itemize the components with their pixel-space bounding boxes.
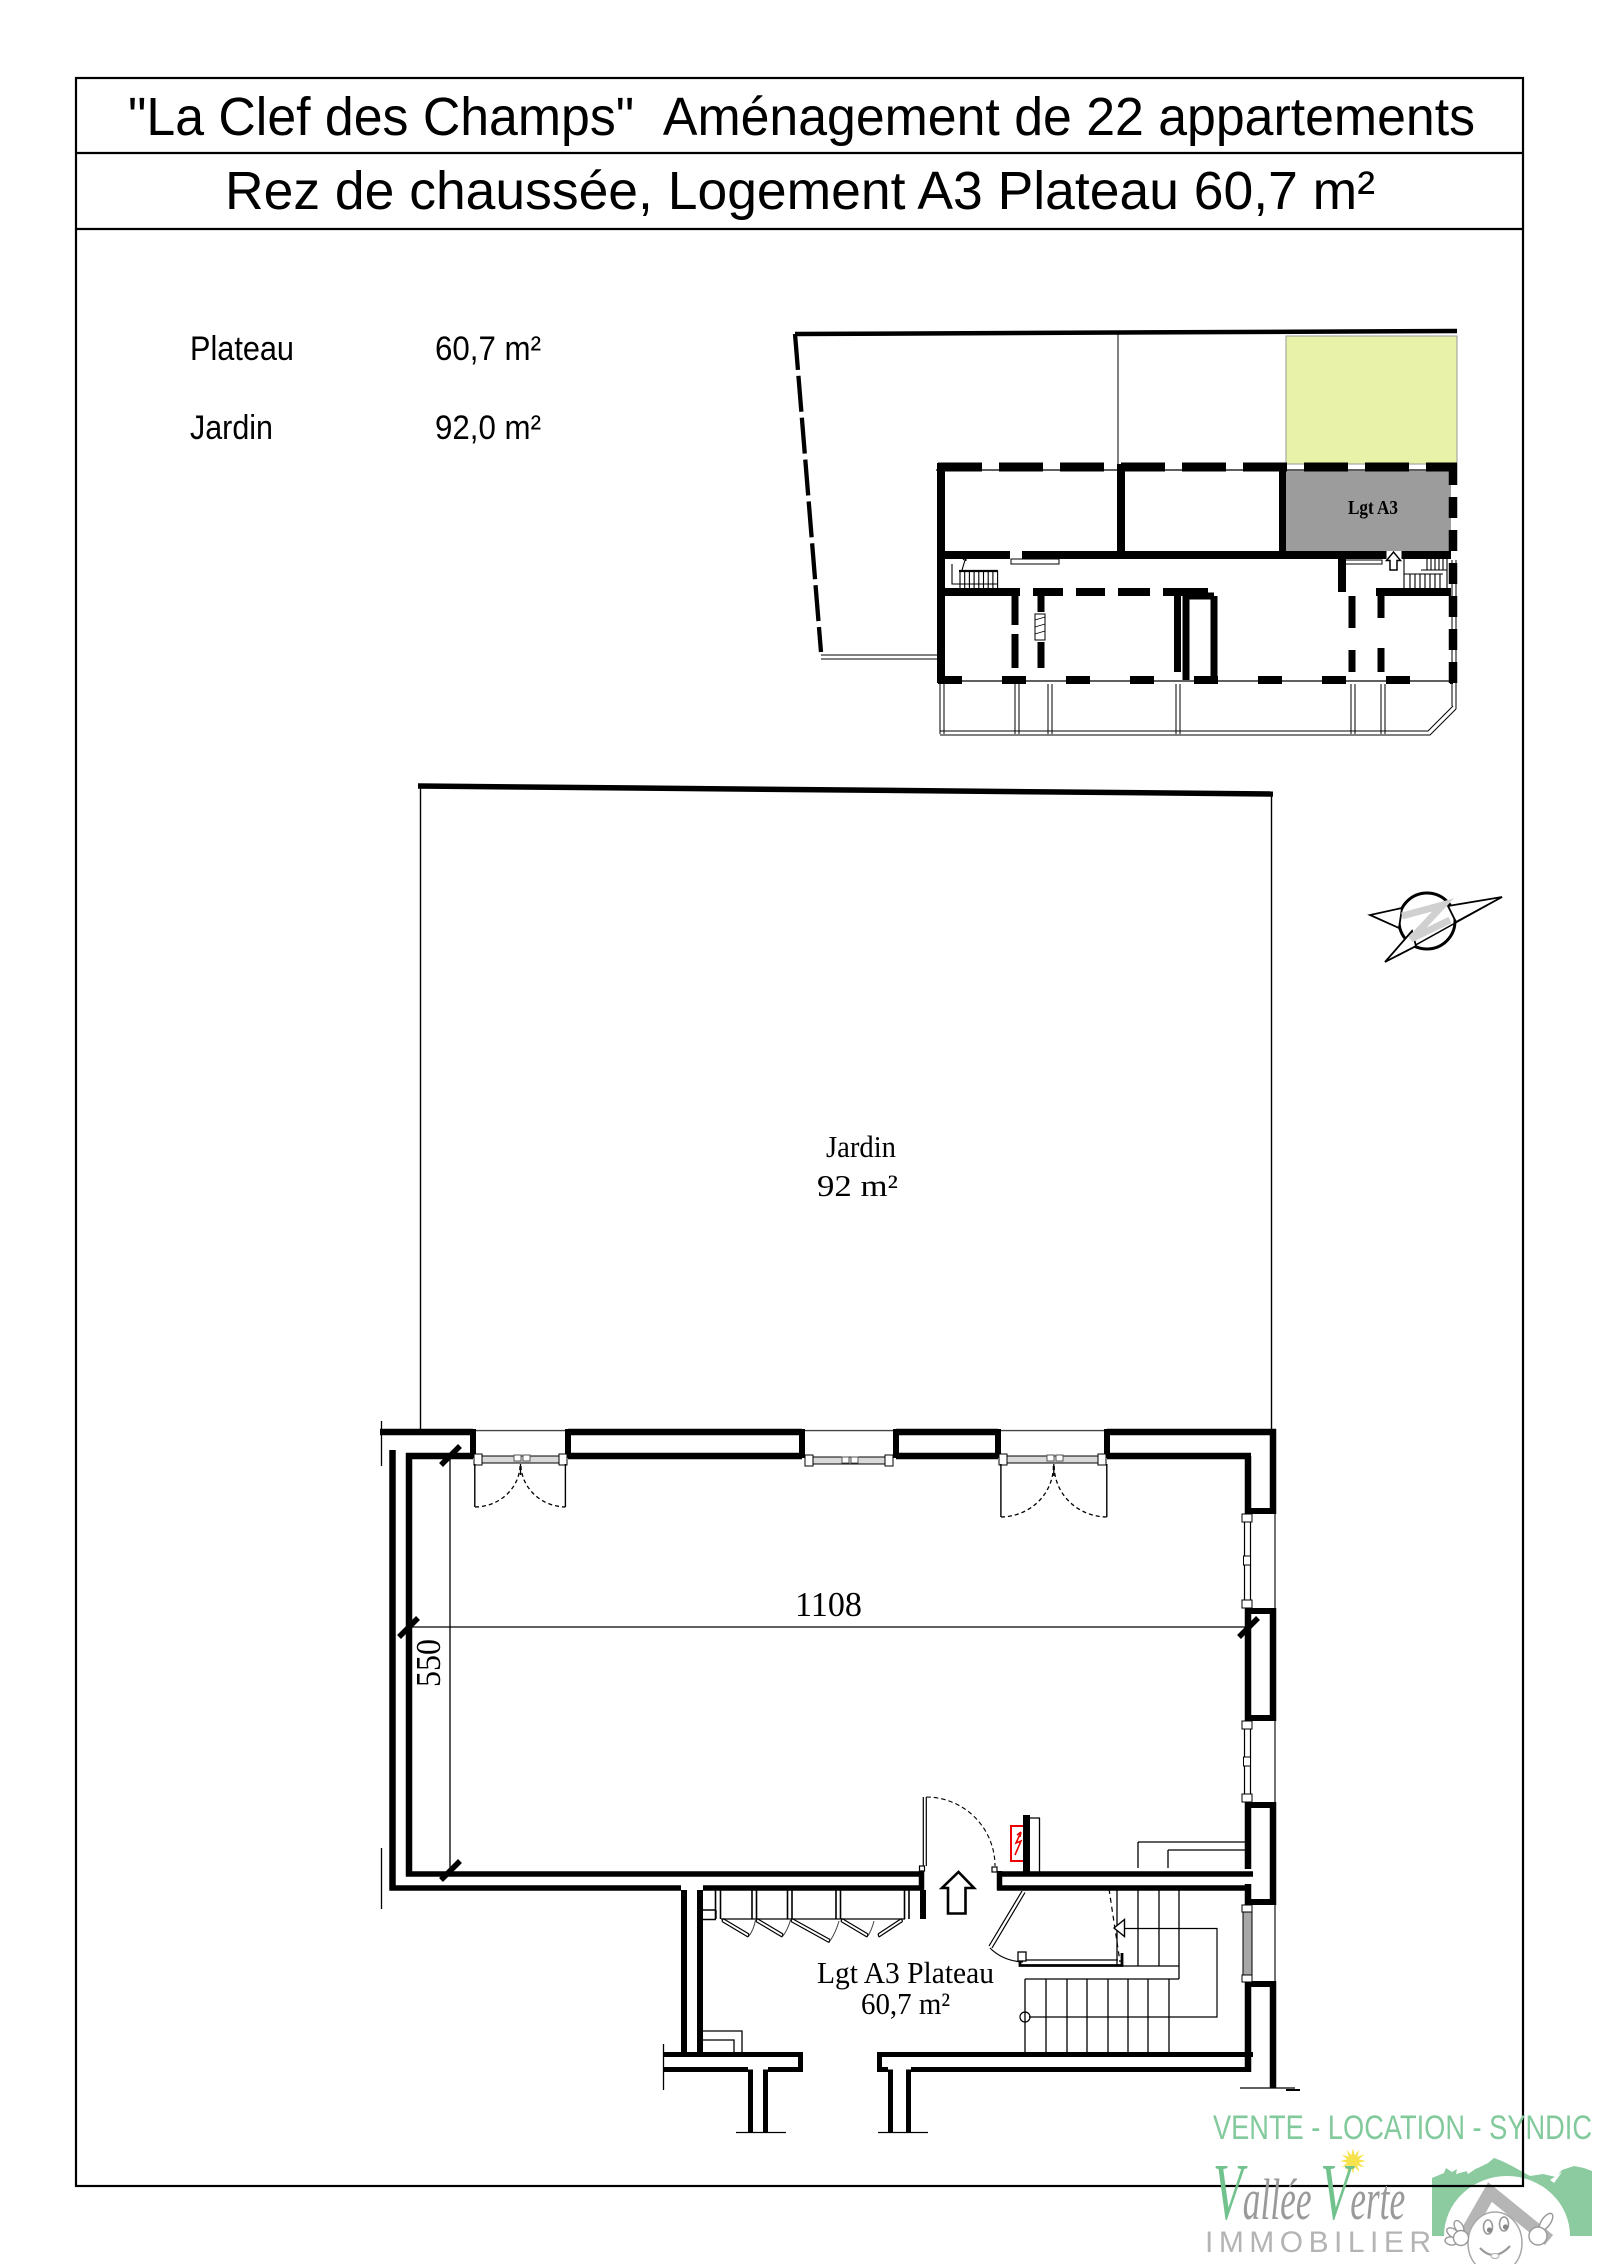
svg-text:IMMOBILIER: IMMOBILIER: [1205, 2226, 1431, 2259]
svg-text:Lgt A3: Lgt A3: [1348, 497, 1398, 519]
svg-text:Lgt A3 Plateau: Lgt A3 Plateau: [817, 1955, 994, 1990]
svg-text:VENTE - LOCATION - SYNDIC: VENTE - LOCATION - SYNDIC: [1213, 2109, 1592, 2147]
svg-text:Rez de chaussée, Logement A3 P: Rez de chaussée, Logement A3 Plateau 60,…: [225, 161, 1375, 221]
svg-text:92 m²: 92 m²: [817, 1168, 898, 1203]
svg-text:60,7 m²: 60,7 m²: [861, 1986, 950, 2021]
svg-text:60,7 m²: 60,7 m²: [435, 330, 541, 368]
svg-text:Jardin: Jardin: [190, 409, 273, 447]
svg-text:Plateau: Plateau: [190, 330, 294, 368]
svg-text:"La Clef des Champs" Aménagem: "La Clef des Champs" Aménagement de 22 a…: [128, 87, 1475, 147]
svg-text:550: 550: [409, 1639, 448, 1687]
svg-text:Vallée Verte: Vallée Verte: [1213, 2149, 1405, 2237]
svg-text:1108: 1108: [795, 1585, 862, 1624]
svg-text:Jardin: Jardin: [826, 1129, 896, 1164]
svg-text:92,0 m²: 92,0 m²: [435, 409, 541, 447]
